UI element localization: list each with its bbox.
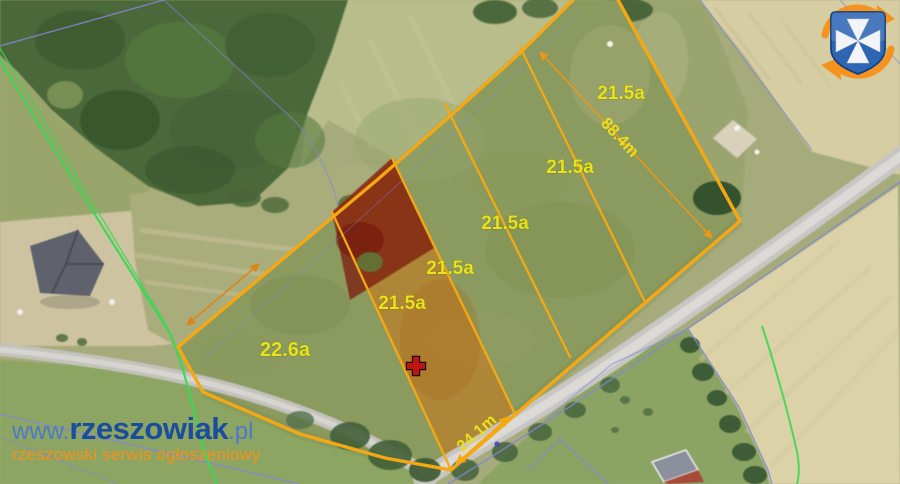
- watermark-www: www.: [12, 420, 69, 444]
- parcel-area-label: 21.5a: [597, 83, 645, 104]
- watermark-tld: .pl: [228, 420, 253, 444]
- parcel-area-label: 22.6a: [260, 339, 311, 361]
- site-watermark: www.rzeszowiak.pl rzeszowski serwis ogło…: [12, 413, 261, 463]
- parcel-area-label-highlighted: 21.5a: [378, 293, 426, 314]
- parcel-area-label: 21.5a: [481, 213, 529, 234]
- logo-shield-cross-icon: [831, 12, 885, 74]
- watermark-tagline: rzeszowski serwis ogłoszeniowy: [12, 446, 261, 463]
- parcel-area-label: 21.5a: [426, 258, 474, 279]
- listing-map-image: 22.6a 21.5a 21.5a 21.5a 21.5a 21.5a 88.4…: [0, 0, 900, 484]
- watermark-sitename: rzeszowiak: [69, 413, 228, 445]
- parcel-area-label: 21.5a: [546, 157, 594, 178]
- watermark-url: www.rzeszowiak.pl: [12, 413, 261, 445]
